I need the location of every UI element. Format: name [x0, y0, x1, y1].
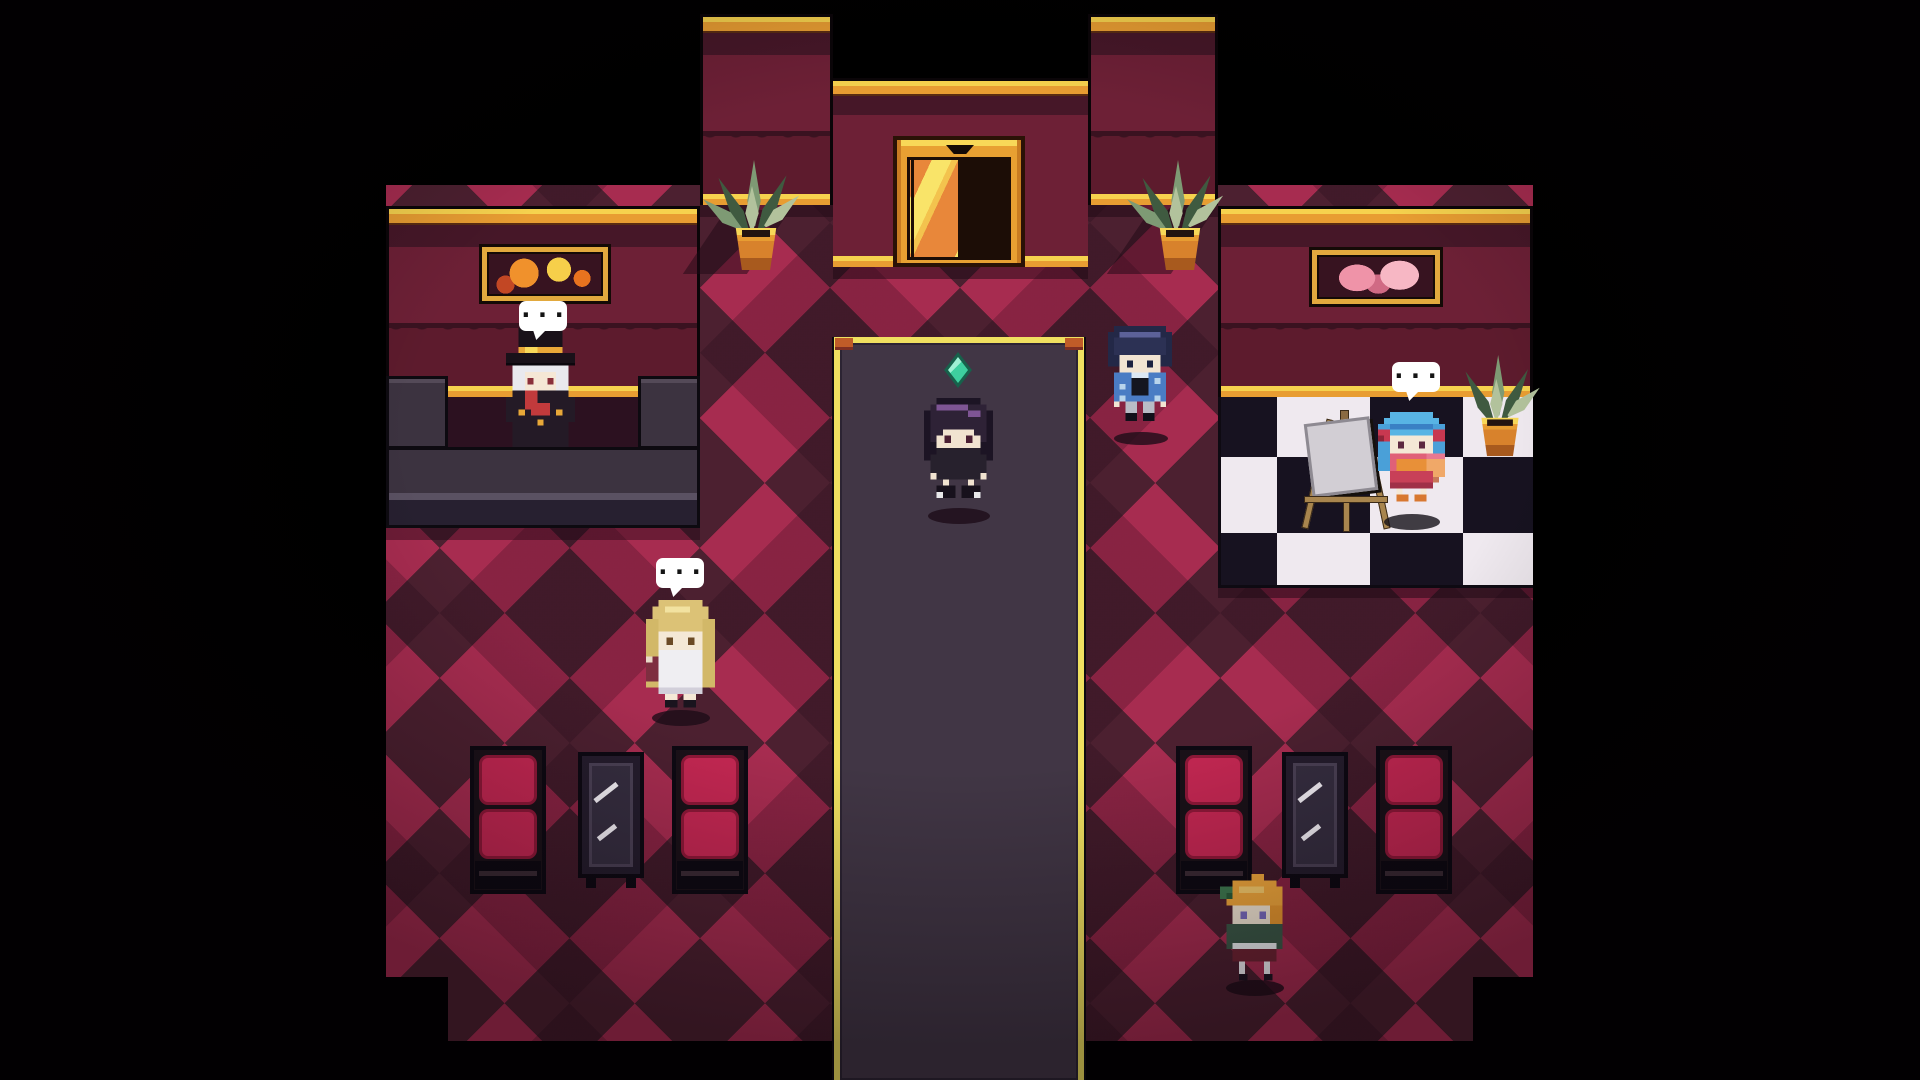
- sofa-left-1: [470, 746, 546, 894]
- speech-bubble-painter: ...: [1392, 362, 1440, 392]
- wall-wave-trim: [1221, 323, 1530, 337]
- sofa-base-slit: [1385, 871, 1443, 876]
- sofa-base-slit: [681, 871, 739, 876]
- mirror-foot: [626, 874, 636, 888]
- mirror-right: [1282, 752, 1348, 878]
- sofa-cushion: [479, 755, 537, 805]
- npc-blonde-white-dress[interactable]: [646, 600, 715, 719]
- speech-bubble-text: ...: [519, 294, 567, 324]
- mirror-glass: [589, 763, 633, 867]
- speech-bubble-blonde: ...: [656, 558, 704, 588]
- sofa-right-2: [1376, 746, 1452, 894]
- speech-bubble-text: ...: [656, 551, 704, 581]
- sofa-cushion: [1185, 809, 1243, 859]
- speech-bubble-text: ...: [1392, 355, 1440, 385]
- plant-soil: [1166, 230, 1194, 237]
- front-desk-clerk[interactable]: [506, 328, 575, 447]
- elevator-door-right[interactable]: [911, 157, 961, 260]
- plant-soil: [742, 230, 770, 237]
- elevator-indicator-icon: [946, 145, 974, 154]
- potted-plant-right: [1136, 160, 1224, 286]
- carpet-corner-left: [835, 338, 853, 350]
- elevator-doors[interactable]: [907, 157, 1011, 260]
- sofa-cushion: [681, 755, 739, 805]
- reception-desk-right: [638, 376, 700, 449]
- mirror-foot: [586, 874, 596, 888]
- sofa-cushion: [681, 809, 739, 859]
- painting-abstract: [482, 247, 608, 301]
- speech-bubble-clerk: ...: [519, 301, 567, 331]
- checker-shadow: [1218, 588, 1533, 598]
- desk-shadow: [386, 528, 700, 540]
- mirror-foot: [1290, 874, 1300, 888]
- painting-hearts: [1312, 250, 1440, 304]
- npc-orange-hair[interactable]: [1220, 874, 1289, 993]
- easel-crossbar: [1304, 496, 1388, 503]
- npc-blue-jacket[interactable]: [1108, 326, 1172, 436]
- reception-desk-left: [386, 376, 448, 449]
- sofa-cushion: [1385, 755, 1443, 805]
- sofa-cushion: [479, 809, 537, 859]
- elevator[interactable]: [893, 136, 1025, 267]
- player-character[interactable]: [924, 398, 993, 517]
- carpet-corner-right: [1065, 338, 1083, 350]
- npc-blue-hair-painter[interactable]: [1378, 412, 1445, 524]
- mirror-left: [578, 752, 644, 878]
- easel-canvas: [1304, 416, 1379, 497]
- wall-wave-trim: [1091, 131, 1215, 145]
- sofa-left-2: [672, 746, 748, 894]
- wall-shadow: [833, 267, 1088, 279]
- sofa-cushion: [1185, 755, 1243, 805]
- potted-plant-corner: [1460, 355, 1541, 471]
- game-screen: ... ... ...: [0, 0, 1920, 1080]
- mirror-glass: [1293, 763, 1337, 867]
- mirror-foot: [1330, 874, 1340, 888]
- wall-wave-trim: [703, 131, 830, 145]
- sofa-cushion: [1385, 809, 1443, 859]
- sofa-right-1: [1176, 746, 1252, 894]
- potted-plant-left: [712, 160, 800, 286]
- reception-desk-front: [386, 447, 700, 528]
- sofa-base-slit: [479, 871, 537, 876]
- plant-soil: [1487, 419, 1513, 425]
